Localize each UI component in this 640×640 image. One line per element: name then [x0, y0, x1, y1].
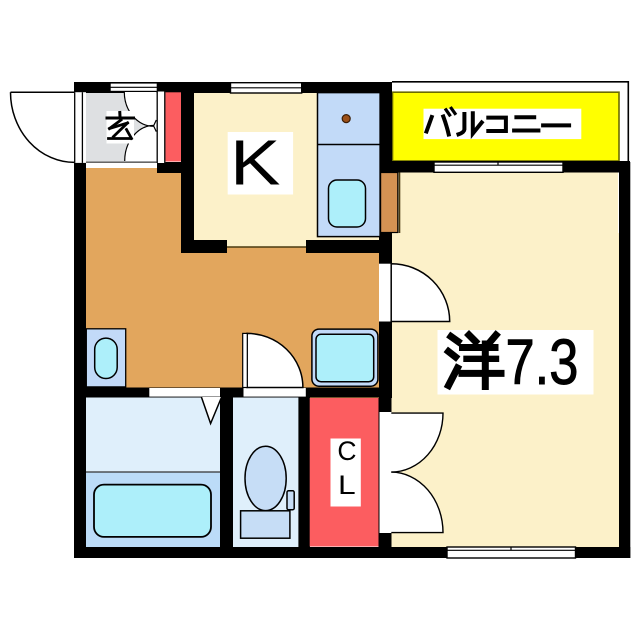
svg-text:K: K [230, 127, 280, 198]
svg-text:7.3: 7.3 [506, 327, 579, 398]
svg-text:L: L [338, 471, 356, 500]
svg-text:C: C [337, 436, 356, 466]
